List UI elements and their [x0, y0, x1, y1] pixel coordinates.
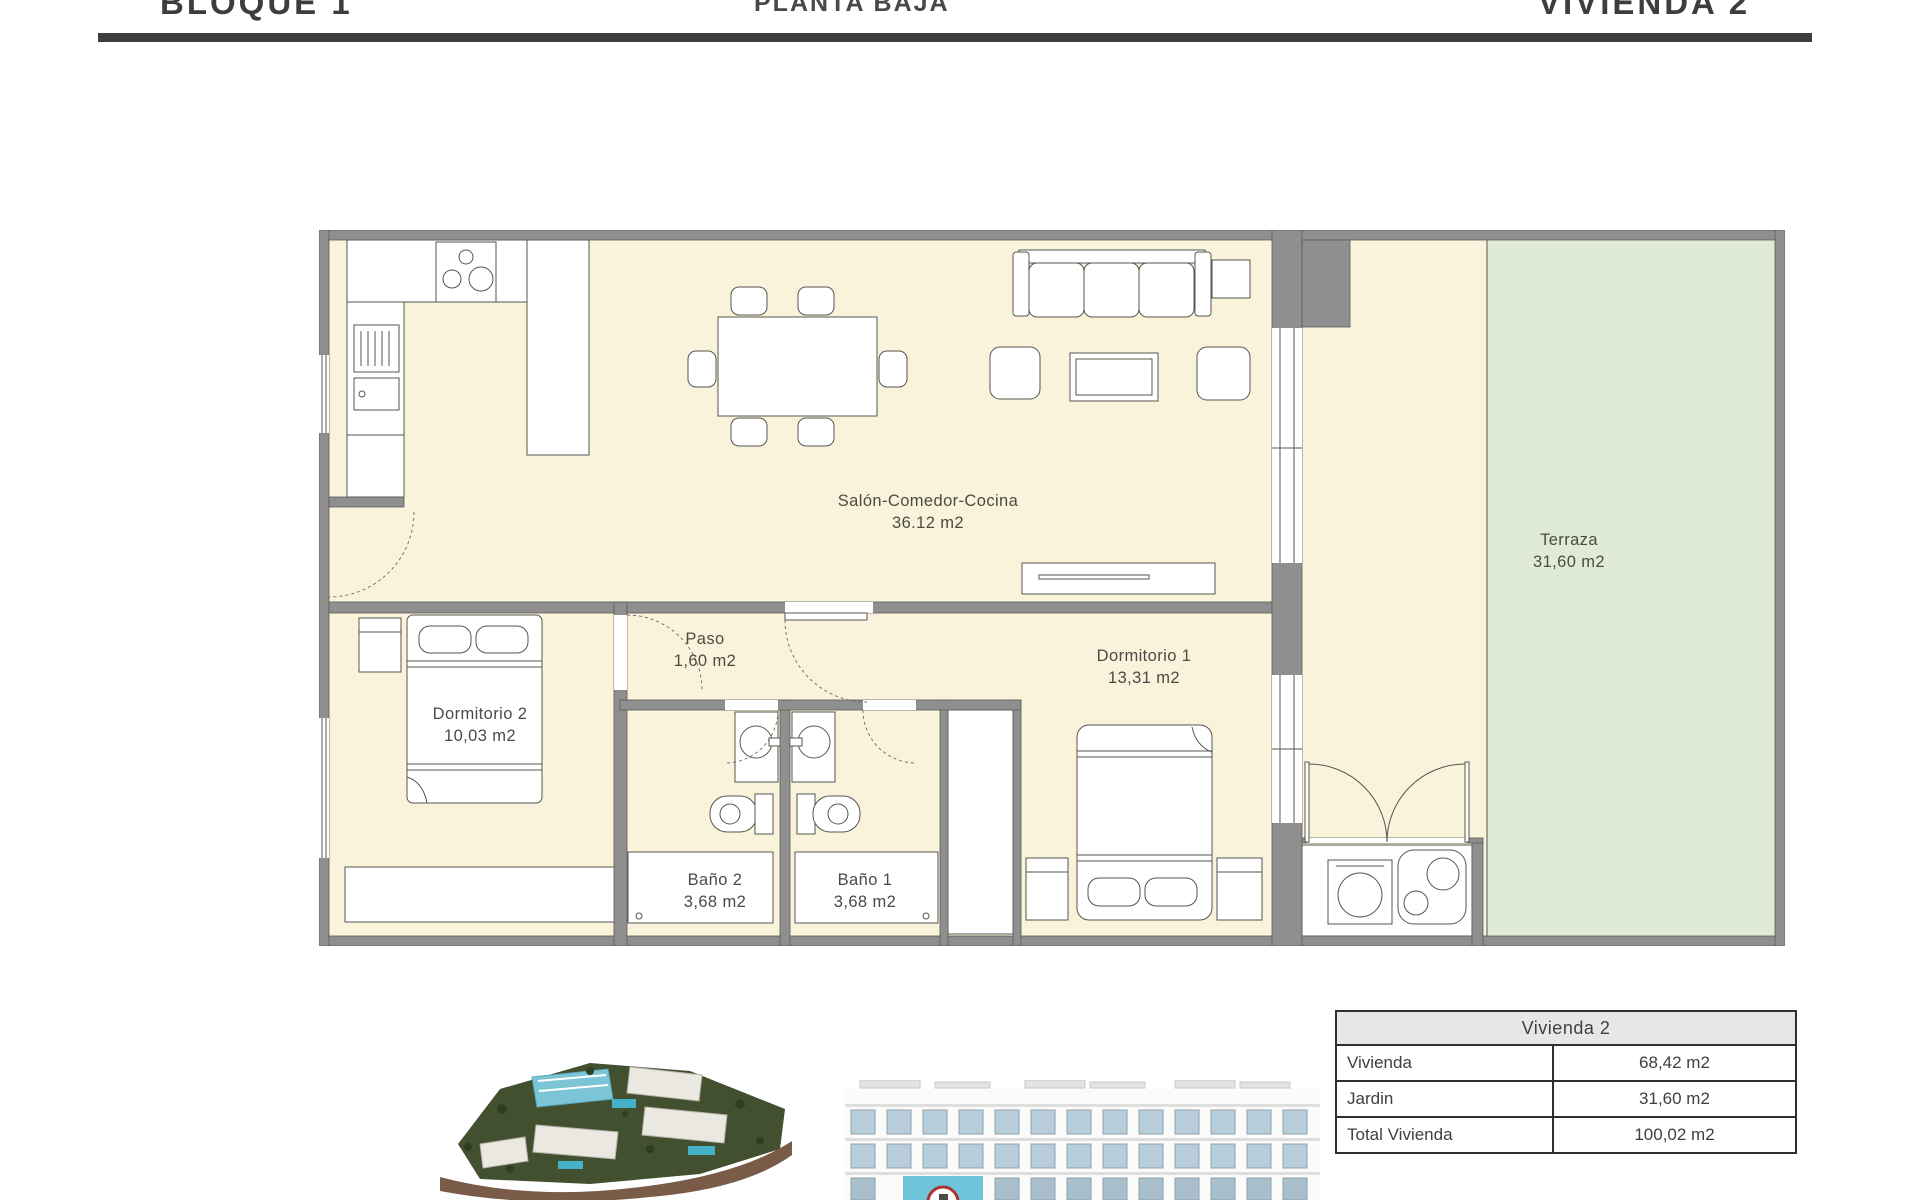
svg-text:31,60 m2: 31,60 m2 [1533, 553, 1605, 571]
side-table [1212, 260, 1250, 298]
summary-table-title: Vivienda 2 [1337, 1012, 1795, 1044]
table-row: Vivienda 68,42 m2 [1337, 1044, 1795, 1080]
svg-text:Dormitorio 2: Dormitorio 2 [433, 705, 528, 723]
floorplan-page: BLOQUE 1 PLANTA BAJA VIVIENDA 2 [0, 0, 1920, 1200]
svg-text:Baño 2: Baño 2 [688, 871, 743, 889]
nightstand [1217, 858, 1262, 920]
tv-sideboard [1022, 563, 1215, 594]
coffee-table [990, 347, 1250, 401]
svg-text:Paso: Paso [685, 630, 724, 648]
row-value: 68,42 m2 [1554, 1046, 1795, 1080]
aerial-development-render [440, 1049, 796, 1200]
svg-text:3,68 m2: 3,68 m2 [684, 893, 746, 911]
building-elevation-render [845, 1080, 1320, 1200]
header-vivienda: VIVIENDA 2 [1538, 0, 1750, 22]
row-value: 100,02 m2 [1554, 1118, 1795, 1152]
table-row: Total Vivienda 100,02 m2 [1337, 1116, 1795, 1152]
summary-table: Vivienda 2 Vivienda 68,42 m2 Jardin 31,6… [1335, 1010, 1797, 1154]
row-label: Vivienda [1337, 1046, 1554, 1080]
svg-text:3,68 m2: 3,68 m2 [834, 893, 896, 911]
kitchen-sink [354, 378, 399, 410]
svg-text:36.12 m2: 36.12 m2 [892, 514, 964, 532]
fridge [347, 435, 404, 497]
entry-door-leaf-right [1465, 762, 1469, 842]
floor-plan: Salón-Comedor-Cocina 36.12 m2 Paso 1,60 … [319, 230, 1785, 946]
svg-text:1,60 m2: 1,60 m2 [674, 652, 736, 670]
window-dormitorio-2 [319, 718, 329, 858]
nightstand [1026, 858, 1068, 920]
row-label: Total Vivienda [1337, 1118, 1554, 1152]
svg-text:Dormitorio 1: Dormitorio 1 [1097, 647, 1192, 665]
svg-text:Salón-Comedor-Cocina: Salón-Comedor-Cocina [838, 492, 1019, 510]
toilet [813, 796, 860, 832]
svg-text:Baño 1: Baño 1 [838, 871, 893, 889]
header-bloque: BLOQUE 1 [160, 0, 353, 22]
row-value: 31,60 m2 [1554, 1082, 1795, 1116]
nightstand [359, 618, 401, 672]
door-leaf-paso [785, 613, 867, 620]
terrace-floor [1487, 240, 1775, 938]
entry-patio-floor [1302, 240, 1487, 938]
svg-text:Terraza: Terraza [1540, 531, 1598, 549]
entry-door-leaf-left [1305, 762, 1309, 842]
header-planta: PLANTA BAJA [754, 0, 950, 18]
toilet [710, 796, 757, 832]
wardrobe-dormitorio-2 [345, 867, 615, 922]
sliding-door-living [1272, 328, 1302, 563]
water-heater [1398, 850, 1466, 924]
svg-text:10,03 m2: 10,03 m2 [444, 727, 516, 745]
window-kitchen [319, 355, 329, 433]
header-rule [98, 33, 1812, 42]
table-row: Jardin 31,60 m2 [1337, 1080, 1795, 1116]
row-label: Jardin [1337, 1082, 1554, 1116]
wardrobe-dormitorio-1 [948, 710, 1013, 934]
washing-machine [1328, 860, 1392, 924]
laundry-area [1302, 845, 1472, 936]
svg-text:13,31 m2: 13,31 m2 [1108, 669, 1180, 687]
